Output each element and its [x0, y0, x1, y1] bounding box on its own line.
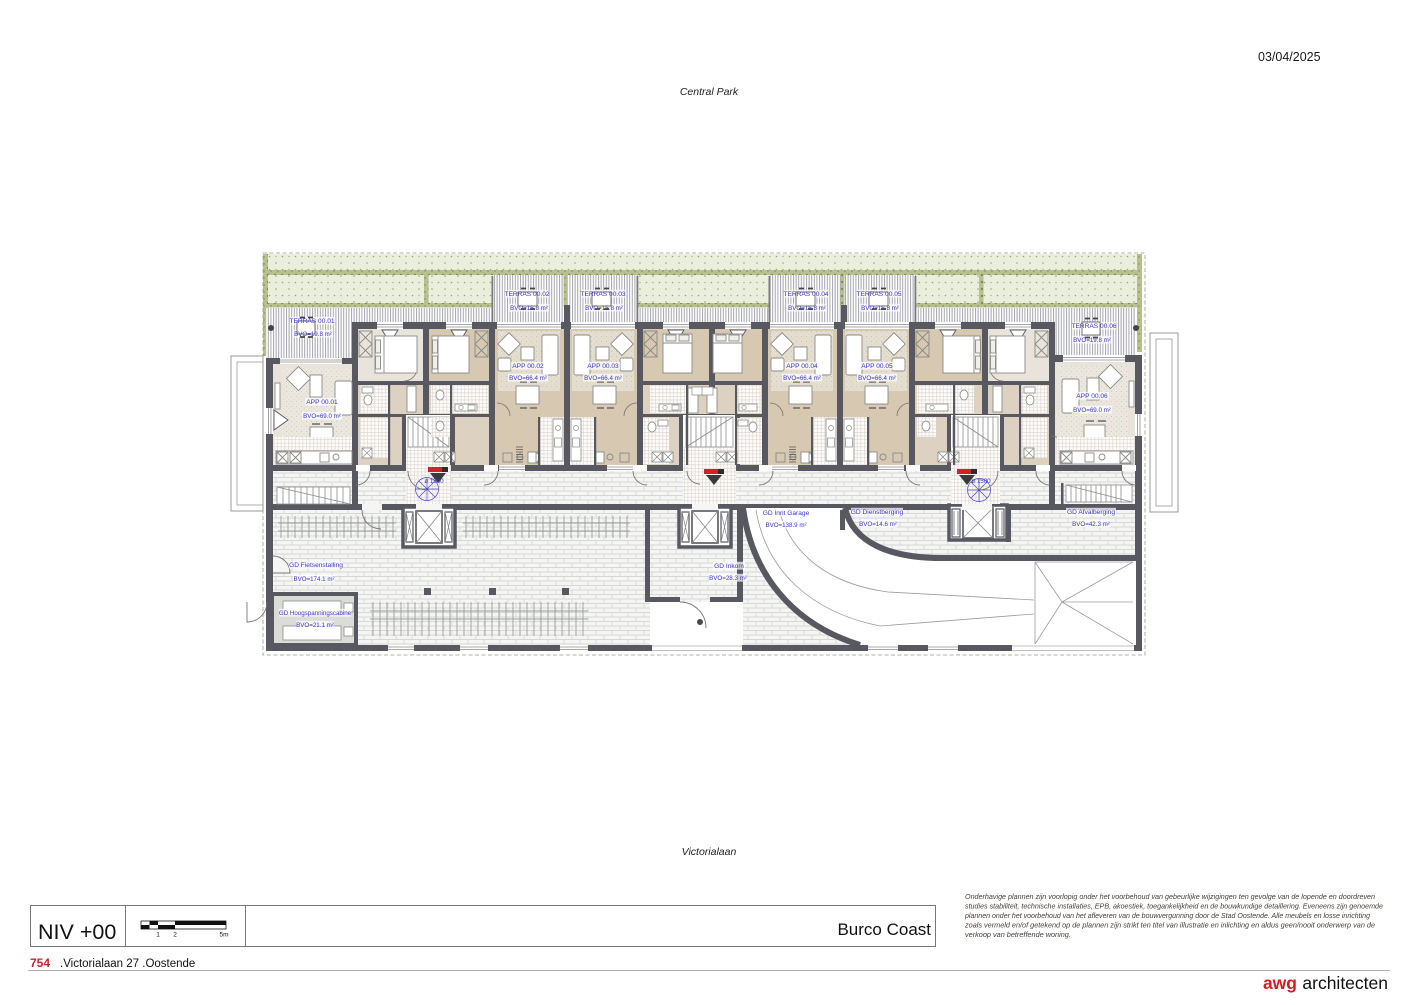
svg-text:GD Inkom: GD Inkom: [714, 563, 744, 570]
svg-text:BVO=138.9 m²: BVO=138.9 m²: [765, 522, 806, 529]
svg-text:Onderhavige plannen zijn voorl: Onderhavige plannen zijn voorlopig onder…: [965, 892, 1375, 901]
svg-text:BVO=66.4 m²: BVO=66.4 m²: [584, 375, 622, 382]
svg-text:5m: 5m: [219, 932, 228, 939]
svg-text:GD Hoogspanningscabine: GD Hoogspanningscabine: [279, 610, 352, 617]
svg-text:APP 00.06: APP 00.06: [1076, 393, 1108, 400]
svg-text:ø 1500: ø 1500: [424, 478, 444, 485]
svg-text:Central Park: Central Park: [680, 86, 739, 98]
svg-text:GD Inrit Garage: GD Inrit Garage: [763, 510, 810, 517]
svg-text:TERRAS 00.01: TERRAS 00.01: [289, 318, 334, 325]
svg-text:TERRAS 00.02: TERRAS 00.02: [504, 291, 549, 298]
svg-text:TERRAS 00.05: TERRAS 00.05: [856, 291, 901, 298]
svg-text:ø 1500: ø 1500: [971, 478, 991, 485]
svg-text:BVO=19.8 m²: BVO=19.8 m²: [1073, 337, 1111, 344]
svg-text:BVO=15.8 m²: BVO=15.8 m²: [788, 305, 826, 312]
svg-text:BVO=69.0 m²: BVO=69.0 m²: [1073, 407, 1111, 414]
svg-text:BVO=174.1 m²: BVO=174.1 m²: [293, 576, 334, 583]
svg-text:GD Dienstberging: GD Dienstberging: [851, 509, 904, 516]
svg-text:BVO=21.1 m²: BVO=21.1 m²: [296, 622, 334, 629]
svg-text:verkoop van betreffende woning: verkoop van betreffende woning.: [965, 930, 1071, 939]
svg-text:1: 1: [156, 932, 160, 939]
svg-text:BVO=66.4 m²: BVO=66.4 m²: [783, 375, 821, 382]
svg-text:awg: awg: [1263, 973, 1297, 993]
svg-text:.Victorialaan 27 .Oostende: .Victorialaan 27 .Oostende: [60, 958, 195, 970]
svg-text:BVO=15.8 m²: BVO=15.8 m²: [585, 305, 623, 312]
svg-text:03/04/2025: 03/04/2025: [1258, 50, 1321, 64]
svg-text:BVO=28.3 m²: BVO=28.3 m²: [709, 575, 747, 582]
svg-text:APP 00.03: APP 00.03: [587, 363, 619, 370]
svg-text:APP 00.04: APP 00.04: [786, 363, 818, 370]
svg-text:NIV +00: NIV +00: [38, 920, 116, 944]
svg-text:APP 00.02: APP 00.02: [512, 363, 544, 370]
svg-text:plannen onder het voorbehoud v: plannen onder het voorbehoud van het afl…: [964, 911, 1370, 920]
svg-text:2: 2: [173, 932, 177, 939]
svg-text:TERRAS 00.04: TERRAS 00.04: [783, 291, 828, 298]
svg-text:APP 00.01: APP 00.01: [306, 399, 338, 406]
svg-text:Victorialaan: Victorialaan: [682, 846, 737, 858]
svg-text:BVO=15.8 m²: BVO=15.8 m²: [510, 305, 548, 312]
svg-text:zoals vermeld en/of getekend o: zoals vermeld en/of getekend op de plann…: [964, 921, 1375, 930]
svg-text:BVO=19.8 m²: BVO=19.8 m²: [294, 331, 332, 338]
svg-text:BVO=69.0 m²: BVO=69.0 m²: [303, 413, 341, 420]
svg-text:studies stabiliteit, technisch: studies stabiliteit, technische installa…: [965, 902, 1383, 911]
svg-text:BVO=66.4 m²: BVO=66.4 m²: [858, 375, 896, 382]
svg-text:APP 00.05: APP 00.05: [861, 363, 893, 370]
svg-text:GD Fietsenstalling: GD Fietsenstalling: [289, 562, 343, 569]
svg-text:BVO=42.3 m²: BVO=42.3 m²: [1072, 521, 1110, 528]
svg-text:GD Afvalberging: GD Afvalberging: [1067, 509, 1115, 516]
svg-text:TERRAS 00.03: TERRAS 00.03: [580, 291, 625, 298]
svg-text:754: 754: [30, 956, 50, 970]
svg-text:BVO=15.8 m²: BVO=15.8 m²: [861, 305, 899, 312]
svg-text:BVO=66.4 m²: BVO=66.4 m²: [509, 375, 547, 382]
svg-text:TERRAS 00.06: TERRAS 00.06: [1071, 323, 1116, 330]
svg-text:BVO=14.6 m²: BVO=14.6 m²: [859, 521, 897, 528]
svg-text:architecten: architecten: [1302, 973, 1388, 993]
svg-text:Burco Coast: Burco Coast: [837, 920, 931, 939]
